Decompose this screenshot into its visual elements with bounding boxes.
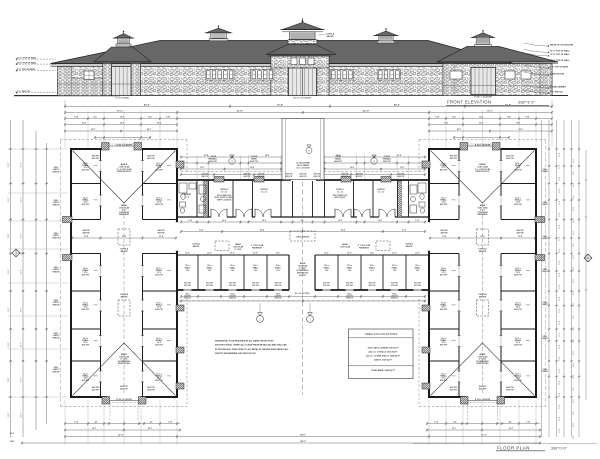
svg-text:IN TECHNICALLY PRACTICED TO AL: IN TECHNICALLY PRACTICED TO ALL METAL IN…: [215, 348, 289, 351]
svg-text:12'-6: 12'-6: [120, 117, 124, 119]
svg-text:4000 PSF: 4000 PSF: [514, 344, 522, 347]
svg-text:12-0: 12-0: [573, 219, 575, 223]
svg-text:12-0: 12-0: [573, 291, 575, 295]
svg-text:WINDOW: WINDOW: [53, 204, 60, 206]
svg-text:4000 PSF: 4000 PSF: [120, 388, 128, 391]
svg-text:CONC SLAB: CONC SLAB: [340, 245, 351, 248]
svg-text:4'-6: 4'-6: [452, 116, 455, 119]
svg-text:12'-6: 12'-6: [120, 123, 124, 125]
svg-text:11'-8: 11'-8: [559, 297, 561, 301]
svg-text:3/32"=1'-0": 3/32"=1'-0": [518, 101, 535, 105]
svg-text:11'-8: 11'-8: [559, 237, 561, 241]
svg-text:AISLE: AISLE: [121, 163, 128, 166]
svg-text:11'-8": 11'-8": [8, 412, 10, 417]
svg-text:12-0: 12-0: [573, 375, 575, 379]
svg-text:23'-7": 23'-7": [21, 162, 23, 167]
svg-text:12'-0": 12'-0": [324, 253, 329, 255]
svg-text:WINDOW: WINDOW: [346, 298, 353, 300]
svg-text:4000 PSF: 4000 PSF: [155, 203, 163, 206]
svg-text:4000 PSF: 4000 PSF: [209, 160, 217, 163]
svg-text:4000 PSF: 4000 PSF: [479, 388, 487, 391]
svg-text:12-0: 12-0: [231, 270, 234, 272]
svg-text:11'-8: 11'-8: [159, 236, 163, 238]
svg-text:12-0: 12-0: [573, 339, 575, 343]
svg-text:GRILL: GRILL: [54, 300, 59, 302]
svg-text:4000 PSF: 4000 PSF: [506, 389, 514, 392]
svg-text:12'-0": 12'-0": [207, 253, 212, 255]
svg-text:13'-2: 13'-2: [157, 123, 161, 125]
svg-text:REINFORCING: REINFORCING: [477, 363, 489, 365]
svg-text:4000 PSF: 4000 PSF: [250, 160, 258, 163]
svg-text:4000 PSF: 4000 PSF: [514, 169, 522, 172]
svg-text:FIBERMESH: FIBERMESH: [478, 214, 489, 216]
svg-text:4000 PSF: 4000 PSF: [155, 274, 163, 277]
svg-text:11'-8": 11'-8": [8, 233, 10, 238]
svg-text:23'-7: 23'-7: [147, 129, 151, 131]
svg-text:12-6: 12-6: [262, 220, 266, 222]
svg-text:11'-8: 11'-8: [559, 177, 561, 181]
svg-text:WINDOW: WINDOW: [53, 271, 60, 273]
svg-text:(24) 12 x 12 STALLS: 3456 SQ F: (24) 12 x 12 STALLS: 3456 SQ FT: [369, 351, 399, 354]
svg-text:4000 PSF: 4000 PSF: [440, 344, 448, 347]
svg-text:12'-0" TOP OF WALL: 12'-0" TOP OF WALL: [550, 59, 570, 62]
svg-text:43'-10": 43'-10": [237, 109, 244, 112]
svg-text:W/D CONNECTION: W/D CONNECTION: [333, 195, 348, 197]
svg-text:7-10: 7-10: [526, 422, 530, 424]
svg-text:4" CONC: 4" CONC: [234, 248, 242, 251]
svg-text:12-0: 12-0: [573, 159, 575, 163]
svg-text:STONE VENEER: STONE VENEER: [550, 86, 566, 88]
svg-text:ABOVE: ABOVE: [326, 35, 334, 38]
svg-text:8' x 10' DOOR: 8' x 10' DOOR: [115, 97, 129, 99]
svg-text:13'-2: 13'-2: [82, 123, 86, 125]
svg-text:W/ FIBERMESH: W/ FIBERMESH: [297, 270, 310, 272]
svg-text:12'-0": 12'-0": [253, 253, 258, 255]
svg-text:12-0: 12-0: [573, 279, 575, 283]
svg-text:W/D CONNECTION: W/D CONNECTION: [217, 195, 232, 197]
svg-text:TACK, BATH, LAUNDRY: 956 SQ FT: TACK, BATH, LAUNDRY: 956 SQ FT: [368, 347, 400, 350]
svg-text:FIBERMESH: FIBERMESH: [252, 247, 263, 249]
svg-text:WINDOW: WINDOW: [53, 371, 60, 373]
svg-text:ABOVE: ABOVE: [120, 296, 128, 299]
svg-text:8'-1/2 x 10 DOOR: 8'-1/2 x 10 DOOR: [116, 399, 132, 401]
svg-text:12'-0": 12'-0": [370, 253, 375, 255]
svg-text:12-0: 12-0: [254, 270, 257, 272]
svg-text:23'-4": 23'-4": [277, 103, 283, 106]
svg-text:12'-0" TOP OF WALL: 12'-0" TOP OF WALL: [550, 50, 570, 53]
svg-text:FRONT ELEVATION: FRONT ELEVATION: [447, 100, 491, 105]
svg-text:178'-2": 178'-2": [300, 441, 307, 443]
svg-text:WINDOW: WINDOW: [275, 298, 282, 300]
svg-text:11'-8: 11'-8: [559, 321, 561, 325]
svg-text:11'-8: 11'-8: [559, 249, 561, 253]
svg-text:11'-8: 11'-8: [559, 429, 561, 433]
svg-text:23'-7: 23'-7: [519, 129, 523, 131]
svg-text:ABOVE: ABOVE: [120, 250, 128, 253]
svg-text:8'-2: 8'-2: [400, 167, 403, 169]
svg-text:12-0: 12-0: [573, 207, 575, 211]
svg-text:23'-7": 23'-7": [21, 377, 23, 382]
svg-text:4-6: 4-6: [95, 421, 98, 424]
svg-text:GRILL: GRILL: [543, 236, 548, 238]
svg-text:11'-8: 11'-8: [442, 236, 446, 238]
svg-text:11'-8: 11'-8: [559, 369, 561, 373]
svg-text:4000 PSF: 4000 PSF: [147, 389, 155, 392]
svg-text:WINDOW: WINDOW: [53, 304, 60, 306]
svg-text:11'-8: 11'-8: [84, 236, 88, 238]
svg-text:4000 PSF: 4000 PSF: [82, 344, 90, 347]
svg-text:23'-7": 23'-7": [21, 197, 23, 202]
svg-text:8'-2: 8'-2: [200, 167, 203, 169]
svg-text:12-0: 12-0: [573, 267, 575, 271]
svg-text:7-10: 7-10: [168, 422, 172, 424]
svg-text:12-0: 12-0: [573, 387, 575, 391]
svg-text:4000 PSF: 4000 PSF: [82, 169, 90, 172]
svg-text:18' x 10' DR OPNG: 18' x 10' DR OPNG: [295, 293, 310, 295]
svg-text:WINDOW: WINDOW: [53, 337, 60, 339]
svg-text:44'-2": 44'-2": [144, 103, 150, 106]
svg-text:11'-8: 11'-8: [559, 273, 561, 277]
svg-text:GRILL: GRILL: [543, 202, 548, 204]
svg-text:23'-7": 23'-7": [21, 307, 23, 312]
svg-text:4000 PSF: 4000 PSF: [155, 379, 163, 382]
svg-text:12 x 12: 12 x 12: [337, 192, 343, 194]
svg-text:FLOOR PLAN: FLOOR PLAN: [497, 445, 530, 450]
svg-text:ABOVE: ABOVE: [479, 296, 487, 299]
svg-text:ARCHITECTURAL: VERIFY ALL PLAN: ARCHITECTURAL: VERIFY ALL PLANS PRIOR ME…: [215, 344, 287, 347]
svg-text:7'-10: 7'-10: [166, 117, 170, 119]
svg-text:11'-8": 11'-8": [8, 307, 10, 312]
svg-text:4000 PSF: 4000 PSF: [383, 160, 391, 163]
svg-text:178-2: 178-2: [10, 441, 15, 443]
svg-text:11'-8": 11'-8": [8, 197, 10, 202]
svg-text:(10) 12 x 12 WIDE STALLS: 1440: (10) 12 x 12 WIDE STALLS: 1440 SQ FT: [366, 354, 401, 357]
svg-text:23'-4": 23'-4": [505, 103, 511, 106]
svg-text:GRILL: GRILL: [54, 167, 59, 169]
svg-text:GRILL: GRILL: [54, 233, 59, 235]
svg-text:23-7: 23-7: [148, 428, 152, 430]
svg-text:12-0: 12-0: [573, 363, 575, 367]
svg-text:11'-8: 11'-8: [559, 153, 561, 157]
svg-text:11'-8: 11'-8: [559, 345, 561, 349]
svg-text:4000 PSF: 4000 PSF: [514, 274, 522, 277]
svg-text:12-0: 12-0: [573, 171, 575, 175]
svg-text:4000 PSF: 4000 PSF: [514, 203, 522, 206]
svg-text:12-0: 12-0: [573, 351, 575, 355]
svg-text:23-7: 23-7: [509, 428, 513, 430]
svg-text:GRILL: GRILL: [543, 369, 548, 371]
svg-text:11'-8: 11'-8: [559, 393, 561, 397]
svg-text:36'-2: 36'-2: [10, 433, 14, 435]
svg-text:4000 PSF: 4000 PSF: [155, 308, 163, 311]
svg-text:FIBERMESH: FIBERMESH: [359, 247, 370, 249]
svg-text:10'-0" x 10' DOOR: 10'-0" x 10' DOOR: [293, 97, 311, 99]
svg-text:11'-8: 11'-8: [559, 213, 561, 217]
svg-text:11'-8: 11'-8: [559, 381, 561, 385]
svg-text:12-0: 12-0: [573, 195, 575, 199]
svg-text:AISLE: AISLE: [300, 262, 306, 265]
svg-text:11'-8: 11'-8: [559, 417, 561, 421]
svg-text:4000 PSF: 4000 PSF: [155, 169, 163, 172]
svg-text:11'-8: 11'-8: [559, 201, 561, 205]
svg-text:8'-1/2 x 10 DOOR: 8'-1/2 x 10 DOOR: [475, 399, 491, 401]
svg-text:7-10: 7-10: [434, 422, 438, 424]
svg-text:GRILL: GRILL: [54, 367, 59, 369]
svg-text:GRILL: GRILL: [230, 294, 235, 296]
svg-text:12-0: 12-0: [276, 270, 279, 272]
svg-text:GRILL: GRILL: [543, 302, 548, 304]
svg-text:23'-7: 23'-7: [91, 129, 95, 131]
svg-text:23'-7": 23'-7": [21, 269, 23, 274]
svg-text:47'-2": 47'-2": [117, 109, 122, 112]
svg-text:47'-2": 47'-2": [118, 433, 123, 436]
svg-text:4000 PSF: 4000 PSF: [82, 379, 90, 382]
svg-text:FINISH FLOOR: FINISH FLOOR: [550, 73, 565, 75]
svg-text:23'-7: 23'-7: [457, 129, 461, 131]
svg-text:4000 PSF: 4000 PSF: [440, 169, 448, 172]
svg-text:TACK A: TACK A: [220, 188, 228, 191]
svg-text:47'-2": 47'-2": [487, 109, 492, 112]
svg-text:TACK D: TACK D: [377, 188, 385, 191]
svg-text:AISLE: AISLE: [479, 163, 486, 166]
svg-text:12'-0": 12'-0": [185, 253, 190, 255]
svg-text:4000 PSF: 4000 PSF: [450, 157, 458, 160]
svg-text:REINFORCED W/: REINFORCED W/: [117, 171, 131, 173]
svg-text:29'-6: 29'-6: [265, 155, 269, 157]
svg-text:RIDGE OF TILE ROOFIN: RIDGE OF TILE ROOFIN: [550, 44, 573, 46]
svg-text:4000 PSF: 4000 PSF: [450, 389, 458, 392]
svg-text:10'-8" TOP OF WALL: 10'-8" TOP OF WALL: [550, 53, 570, 56]
svg-text:12'-0": 12'-0": [392, 253, 397, 255]
svg-text:11'-8": 11'-8": [8, 342, 10, 347]
svg-text:10'-6: 10'-6: [350, 167, 354, 169]
svg-text:0'-0" FIN FLR: 0'-0" FIN FLR: [550, 91, 563, 93]
svg-text:4'-6: 4'-6: [93, 116, 96, 119]
svg-text:TACK C: TACK C: [336, 188, 344, 191]
svg-text:12-0: 12-0: [573, 231, 575, 235]
svg-text:TOTAL BARN: 7988 SQ FT: TOTAL BARN: 7988 SQ FT: [371, 369, 396, 372]
svg-text:4000 PSF: 4000 PSF: [82, 274, 90, 277]
svg-text:GRILL: GRILL: [276, 294, 281, 296]
svg-text:4000 PSF: 4000 PSF: [147, 157, 155, 160]
svg-text:11'-8: 11'-8: [559, 189, 561, 193]
svg-text:4000 PSF: 4000 PSF: [440, 308, 448, 311]
svg-text:4-6: 4-6: [509, 421, 512, 424]
svg-text:12-0: 12-0: [370, 270, 373, 272]
svg-text:REINFORCING: REINFORCING: [297, 273, 309, 275]
svg-text:WINDOW: WINDOW: [53, 171, 60, 173]
svg-text:12-6: 12-6: [378, 220, 382, 222]
svg-text:4000 PSF: 4000 PSF: [82, 308, 90, 311]
svg-text:7-10: 7-10: [188, 220, 192, 222]
svg-text:4000 PSF: 4000 PSF: [440, 379, 448, 382]
svg-text:11'-8: 11'-8: [559, 333, 561, 337]
svg-text:11'-8: 11'-8: [559, 165, 561, 169]
svg-text:9-2: 9-2: [301, 220, 304, 222]
svg-text:4000 PSF: 4000 PSF: [92, 389, 100, 392]
svg-text:GRILL: GRILL: [543, 269, 548, 271]
svg-text:7-10: 7-10: [74, 422, 78, 424]
svg-text:AISLES: 2136 SQ FT: AISLES: 2136 SQ FT: [374, 358, 393, 361]
svg-text:4000 PSF: 4000 PSF: [514, 308, 522, 311]
svg-text:GRILL: GRILL: [543, 169, 548, 171]
svg-text:GRILL: GRILL: [54, 333, 59, 335]
svg-text:GRILL: GRILL: [185, 294, 190, 296]
svg-text:29-6: 29-6: [260, 230, 264, 232]
svg-text:11'-8: 11'-8: [559, 309, 561, 313]
svg-text:23'-7": 23'-7": [21, 412, 23, 417]
svg-text:GRILL: GRILL: [347, 294, 352, 296]
svg-text:23-7: 23-7: [452, 428, 456, 430]
svg-text:7'-10: 7'-10: [435, 117, 439, 119]
svg-text:13'-2: 13'-2: [516, 123, 520, 125]
svg-text:8'-0" TOP OF WDW: 8'-0" TOP OF WDW: [550, 66, 568, 68]
svg-text:4000 PSF: 4000 PSF: [514, 379, 522, 382]
svg-text:12-0: 12-0: [325, 270, 328, 272]
svg-text:12 x 12: 12 x 12: [378, 192, 384, 194]
svg-text:4-6: 4-6: [150, 421, 153, 424]
svg-text:ABOVE: ABOVE: [406, 245, 413, 248]
svg-text:CUPOLA ABOVE: CUPOLA ABOVE: [296, 236, 310, 239]
svg-text:AREA CALCULATIONS: AREA CALCULATIONS: [365, 332, 398, 336]
svg-text:12-0: 12-0: [208, 270, 211, 272]
svg-text:23'-7": 23'-7": [21, 342, 23, 347]
svg-text:12'-0": 12'-0": [347, 253, 352, 255]
svg-text:12-0: 12-0: [573, 399, 575, 403]
svg-text:7-10: 7-10: [415, 220, 419, 222]
svg-text:11'-8: 11'-8: [559, 261, 561, 265]
svg-text:12-0: 12-0: [348, 270, 351, 272]
svg-text:11'-8: 11'-8: [559, 405, 561, 409]
svg-text:10'-0 x 10 DOOR: 10'-0 x 10 DOOR: [296, 168, 310, 170]
svg-text:12-6: 12-6: [222, 220, 226, 222]
svg-text:8'-1/2 x 10 DOOR: 8'-1/2 x 10 DOOR: [116, 145, 132, 147]
svg-text:4000 PSF: 4000 PSF: [334, 160, 342, 163]
svg-text:12-0: 12-0: [186, 270, 189, 272]
svg-text:4000 PSF: 4000 PSF: [92, 157, 100, 160]
svg-text:12'-0": 12'-0": [415, 253, 420, 255]
svg-text:11'-8: 11'-8: [559, 225, 561, 229]
svg-text:WINDOW: WINDOW: [184, 298, 191, 300]
svg-text:11'-8": 11'-8": [8, 377, 10, 382]
svg-text:GRILL: GRILL: [392, 294, 397, 296]
svg-text:WINDOW: WINDOW: [391, 298, 398, 300]
svg-text:WINDOW: WINDOW: [229, 298, 236, 300]
svg-text:23-7: 23-7: [92, 428, 96, 430]
svg-text:12-0: 12-0: [573, 243, 575, 247]
svg-text:4000 PSF: 4000 PSF: [82, 203, 90, 206]
svg-text:SPECIFY ENGINEERED, NEC ARTICL: SPECIFY ENGINEERED, NEC ARTICLE 547: [215, 352, 257, 355]
svg-text:4000 PSF: 4000 PSF: [440, 274, 448, 277]
svg-text:7'-10: 7'-10: [74, 117, 78, 119]
svg-text:MECH. EQUIP: MECH. EQUIP: [335, 197, 346, 199]
svg-text:4000 PSF: 4000 PSF: [440, 203, 448, 206]
svg-text:11'-8: 11'-8: [559, 285, 561, 289]
svg-text:11'-8": 11'-8": [8, 269, 10, 274]
svg-text:11'-8: 11'-8: [559, 357, 561, 361]
svg-text:12-0: 12-0: [573, 327, 575, 331]
svg-text:REINFORCED W/: REINFORCED W/: [476, 171, 490, 173]
svg-text:4000 PSF: 4000 PSF: [155, 344, 163, 347]
svg-text:ABOVE: ABOVE: [193, 245, 200, 248]
svg-text:GRILL: GRILL: [543, 336, 548, 338]
svg-text:12-0: 12-0: [573, 255, 575, 259]
svg-text:TACK B: TACK B: [260, 188, 268, 191]
svg-text:12-0: 12-0: [416, 270, 419, 272]
svg-text:12-0: 12-0: [573, 315, 575, 319]
svg-text:12-0: 12-0: [573, 411, 575, 415]
svg-text:4'-6: 4'-6: [148, 116, 151, 119]
svg-text:GRILL: GRILL: [54, 200, 59, 202]
svg-text:ABOVE: ABOVE: [479, 250, 487, 253]
svg-text:12'-0": 12'-0": [230, 253, 235, 255]
svg-text:12 x 12: 12 x 12: [221, 192, 227, 194]
svg-text:4-6: 4-6: [454, 421, 457, 424]
svg-text:7'-10: 7'-10: [525, 117, 529, 119]
svg-text:12-0: 12-0: [573, 435, 575, 439]
svg-text:29-6: 29-6: [341, 230, 345, 232]
svg-text:12'-0" TOP OF WALL: 12'-0" TOP OF WALL: [17, 56, 37, 59]
svg-text:12-0: 12-0: [573, 303, 575, 307]
svg-text:12-0: 12-0: [573, 183, 575, 187]
svg-text:11'-8: 11'-8: [518, 236, 522, 238]
svg-text:10'-6: 10'-6: [250, 167, 254, 169]
svg-text:12-6: 12-6: [338, 220, 342, 222]
svg-text:12-0: 12-0: [393, 270, 396, 272]
svg-text:4'-6: 4'-6: [507, 116, 510, 119]
svg-text:12'-0": 12'-0": [276, 253, 281, 255]
svg-text:FIBERMESH: FIBERMESH: [119, 214, 130, 216]
svg-text:10'-0" TOP OF WALL: 10'-0" TOP OF WALL: [17, 61, 37, 64]
svg-text:11'-8": 11'-8": [8, 162, 10, 167]
svg-text:RESIDENTIAL PLAN REQUIRED AT A: RESIDENTIAL PLAN REQUIRED AT ALL BARN PR…: [215, 340, 274, 343]
svg-text:44'-2": 44'-2": [394, 103, 400, 106]
svg-text:GRILL: GRILL: [54, 267, 59, 269]
svg-text:4000 PSF: 4000 PSF: [506, 157, 514, 160]
svg-text:12 x 12: 12 x 12: [261, 192, 267, 194]
svg-text:3/16"=1'-0": 3/16"=1'-0": [551, 446, 567, 450]
svg-text:8'-1/2" x 10' DOOR: 8'-1/2" x 10' DOOR: [474, 97, 492, 99]
svg-text:12-0: 12-0: [573, 423, 575, 427]
svg-text:84'-0": 84'-0": [300, 433, 305, 436]
svg-text:8'-1/2 x 10 DOOR: 8'-1/2 x 10 DOOR: [475, 145, 491, 147]
svg-text:WINDOW: WINDOW: [53, 237, 60, 239]
svg-text:23'-7": 23'-7": [21, 233, 23, 238]
svg-text:REINFORCING: REINFORCING: [118, 363, 130, 365]
svg-text:43'-10": 43'-10": [363, 109, 370, 112]
